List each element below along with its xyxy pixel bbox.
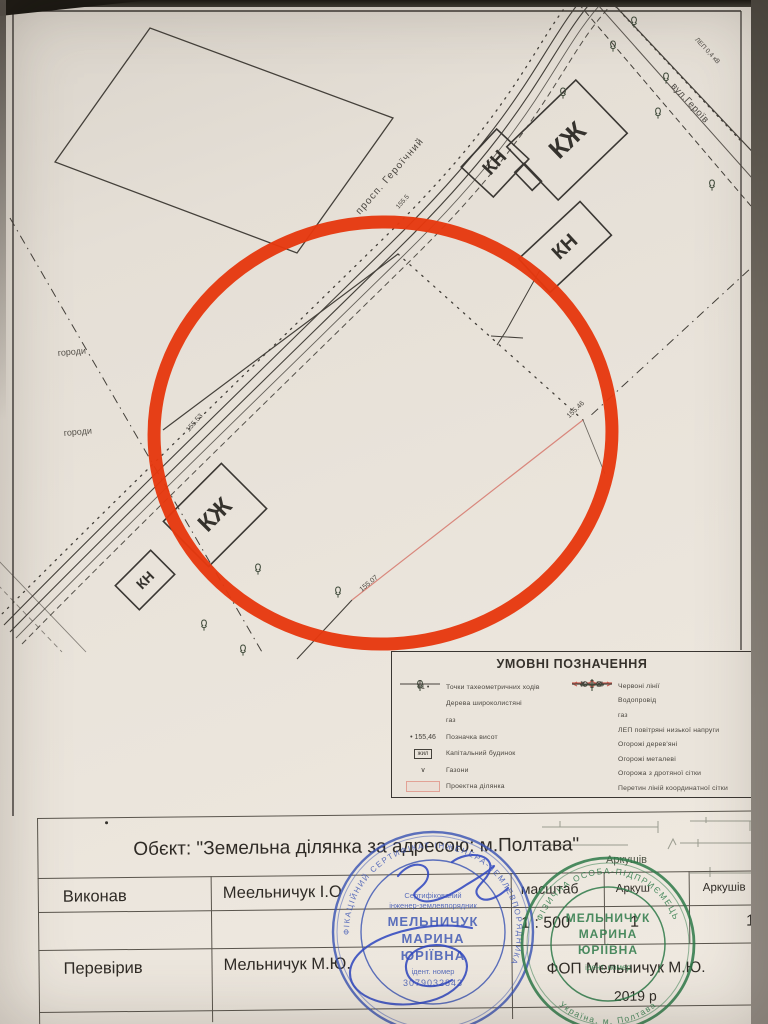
green-stamp-name: МАРИНА	[579, 927, 638, 941]
green-stamp-surname: МЕЛЬНИЧУК	[566, 911, 651, 925]
blue-stamp-id-label: ідент. номер	[412, 967, 455, 976]
land-survey-plan-photo: КН КЖ КН КЖ КН	[0, 0, 768, 1024]
blue-stamp-name: МАРИНА	[401, 931, 464, 946]
svg-text:Україна, м. Полтава: Україна, м. Полтава	[558, 999, 659, 1024]
green-stamp-ring-bottom-text: Україна, м. Полтава	[558, 999, 659, 1024]
blue-round-stamp: КВАЛІФІКАЦІЙНИЙ СЕРТИФІКАТ ІНЖЕНЕРА-ЗЕМЛ…	[0, 0, 533, 1024]
blue-stamp-ring-text: КВАЛІФІКАЦІЙНИЙ СЕРТИФІКАТ ІНЖЕНЕРА-ЗЕМЛ…	[0, 0, 524, 967]
stamps-layer: КВАЛІФІКАЦІЙНИЙ СЕРТИФІКАТ ІНЖЕНЕРА-ЗЕМЛ…	[0, 0, 768, 1024]
green-stamp-patronymic: ЮРІЇВНА	[578, 942, 638, 957]
green-round-stamp: ФІЗИЧНА ОСОБА-ПІДПРИЄМЕЦЬ Україна, м. По…	[522, 858, 694, 1024]
blue-stamp-line2: інженер-землевпорядник	[389, 901, 477, 910]
green-stamp-id-label: ідент. номер	[585, 963, 631, 972]
svg-text:КВАЛІФІКАЦІЙНИЙ СЕРТИФІКАТ ІНЖ: КВАЛІФІКАЦІЙНИЙ СЕРТИФІКАТ ІНЖЕНЕРА-ЗЕМЛ…	[0, 0, 524, 967]
